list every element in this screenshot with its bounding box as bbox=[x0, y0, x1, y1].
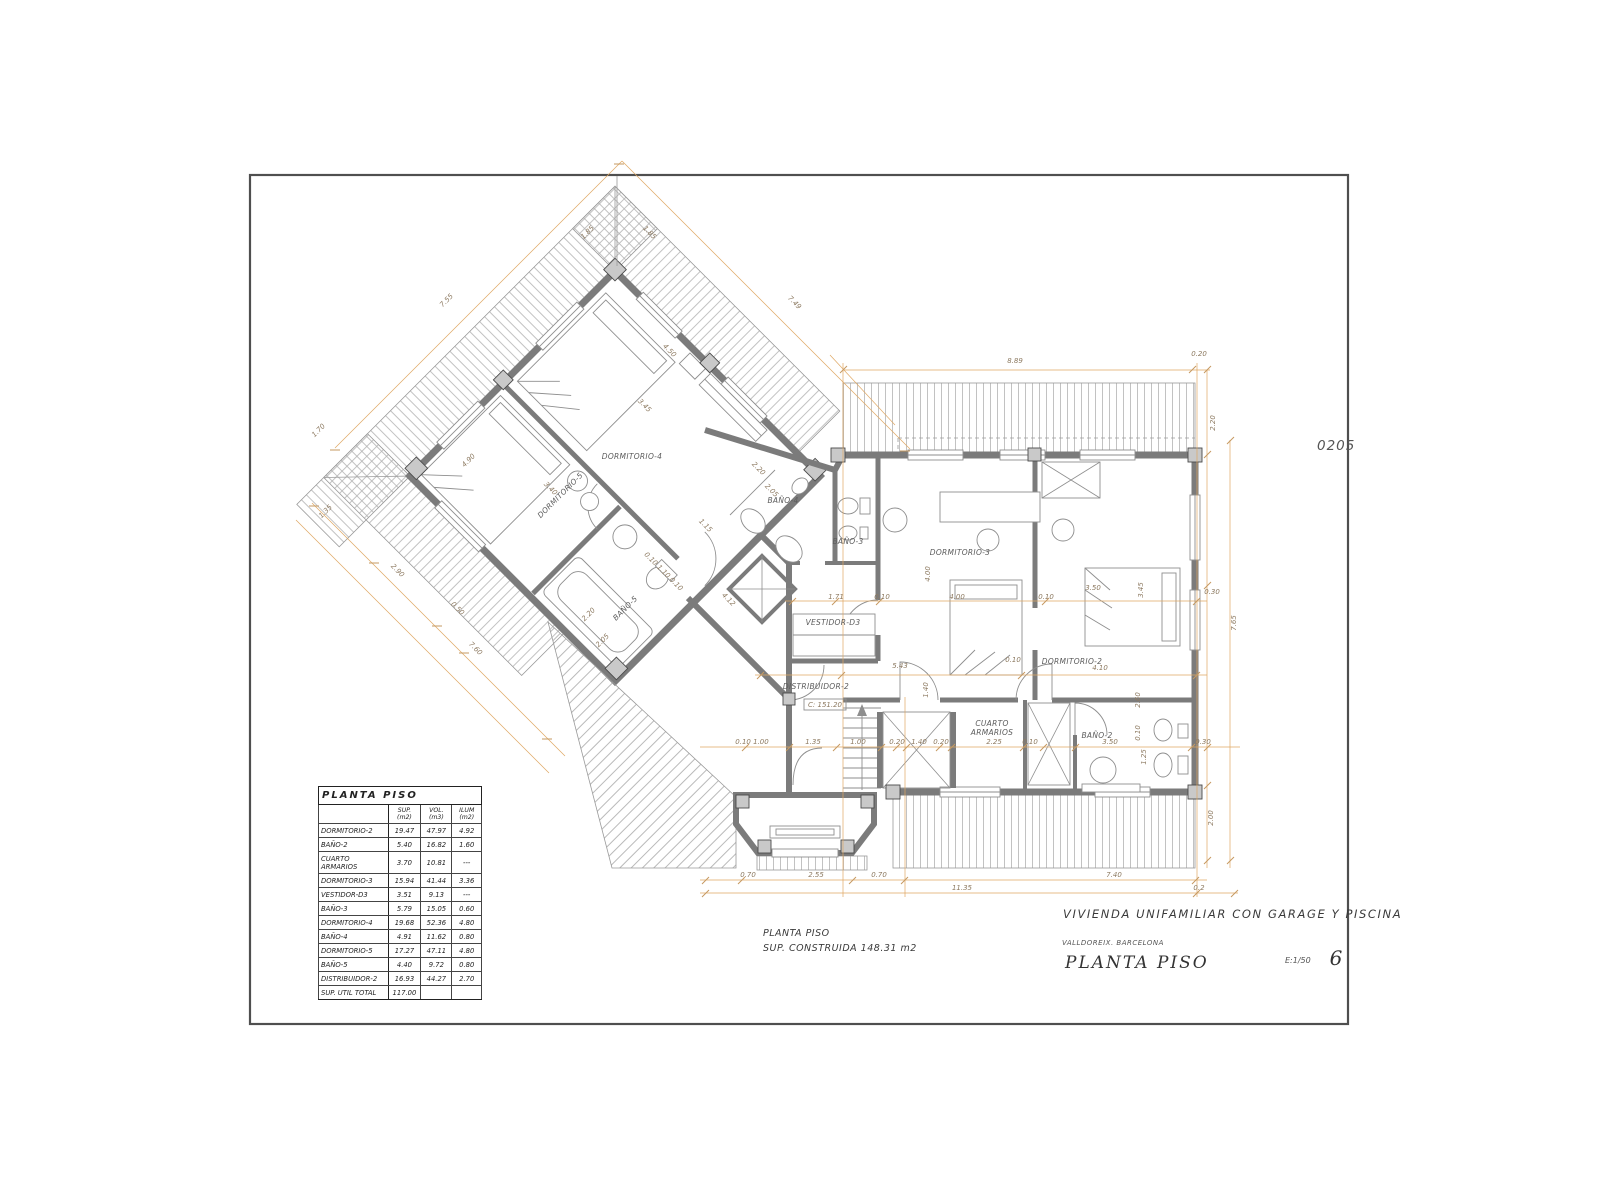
dim-label: 2.90 bbox=[389, 562, 406, 579]
area-table-header-row: SUP. (m2) VOL. (m3) ILUM (m2) bbox=[319, 805, 482, 824]
dim-label: 0.10 bbox=[1022, 738, 1038, 746]
table-row: DORMITORIO-219.4747.974.92 bbox=[319, 824, 482, 838]
drawing-scale: E:1/50 bbox=[1285, 956, 1311, 965]
dim-label: 0.30 bbox=[1204, 588, 1220, 596]
project-location: VALLDOREIX. BARCELONA bbox=[1062, 939, 1164, 947]
dim-label: 0.10 bbox=[874, 593, 890, 601]
summary-line1: PLANTA PISO bbox=[763, 928, 830, 939]
skylight-shaft bbox=[729, 556, 795, 622]
dim-label: 0.70 bbox=[871, 871, 887, 879]
room-label: VESTIDOR-D3 bbox=[806, 618, 861, 627]
dim-label: 0.20 bbox=[933, 738, 949, 746]
title-block: VIVIENDA UNIFAMILIAR CON GARAGE Y PISCIN… bbox=[1062, 907, 1402, 973]
dim-label: 1.25 bbox=[1140, 749, 1148, 765]
room-label: BAÑO-3 bbox=[832, 537, 863, 546]
dim-label: 0.20 bbox=[1191, 350, 1207, 358]
dim-label: 7.60 bbox=[467, 640, 484, 657]
dim-label: 1.40 bbox=[922, 682, 930, 698]
dim-label: 8.89 bbox=[1007, 357, 1023, 365]
summary-line2: SUP. CONSTRUIDA 148.31 m2 bbox=[763, 943, 917, 954]
area-table-title-row: PLANTA PISO bbox=[319, 787, 482, 805]
dim-label: 1.71 bbox=[828, 593, 844, 601]
dim-label: 4.00 bbox=[924, 566, 932, 582]
dim-label: 3.45 bbox=[636, 397, 653, 414]
dim-label: 7.55 bbox=[438, 292, 455, 309]
col-sup: SUP. (m2) bbox=[388, 805, 421, 824]
dim-label: 2.60 bbox=[1134, 692, 1142, 708]
dim-label: 3.50 bbox=[1085, 584, 1101, 592]
level-tag: C: 151.20 bbox=[804, 699, 846, 710]
dim-label: 7.49 bbox=[786, 294, 803, 311]
table-row: BAÑO-35.7915.050.60 bbox=[319, 902, 482, 916]
dim-label: 3.45 bbox=[1137, 582, 1145, 598]
area-table: PLANTA PISO SUP. (m2) VOL. (m3) ILUM (m2… bbox=[318, 786, 482, 1000]
upper-roof-strip bbox=[843, 383, 1195, 453]
dim-label: 1.15 bbox=[697, 517, 714, 534]
dim-label: 0.10 bbox=[1038, 593, 1054, 601]
table-row: BAÑO-25.4016.821.60 bbox=[319, 838, 482, 852]
lower-roof-strip bbox=[893, 795, 1195, 868]
sheet-title: PLANTA PISO bbox=[1064, 953, 1209, 973]
dim-label: 3.50 bbox=[1102, 738, 1118, 746]
dim-label: 0.10 bbox=[1005, 656, 1021, 664]
sink bbox=[608, 520, 642, 554]
area-table-title: PLANTA PISO bbox=[319, 787, 482, 805]
right-wing bbox=[688, 430, 1202, 857]
col-vol: VOL. (m3) bbox=[421, 805, 452, 824]
room-label: DISTRIBUIDOR-2 bbox=[783, 682, 849, 691]
dim-label: 1.35 bbox=[805, 738, 821, 746]
dim-label: 2.20 bbox=[750, 460, 767, 477]
room-label: CUARTO bbox=[975, 719, 1008, 728]
dim-label: 5.43 bbox=[892, 662, 908, 670]
dim-label: 0.70 bbox=[740, 871, 756, 879]
dim-label: 0.30 bbox=[1195, 738, 1211, 746]
project-title: VIVIENDA UNIFAMILIAR CON GARAGE Y PISCIN… bbox=[1063, 907, 1402, 921]
dim-label: 2.55 bbox=[808, 871, 824, 879]
chair bbox=[577, 489, 602, 514]
bay-terrace-hatch bbox=[757, 856, 867, 870]
dim-label: 1.40 bbox=[911, 738, 927, 746]
table-row: BAÑO-44.9111.620.80 bbox=[319, 930, 482, 944]
dim-label: 0.2 bbox=[1193, 884, 1205, 892]
dim-label: 7.65 bbox=[1230, 615, 1238, 631]
col-room bbox=[319, 805, 389, 824]
table-row: BAÑO-54.409.720.80 bbox=[319, 958, 482, 972]
floor-plan-drawing: C: 151.20 DORMITORIO-4DORMITORIO-5BAÑO-5… bbox=[0, 0, 1600, 1200]
table-row: DORMITORIO-419.6852.364.80 bbox=[319, 916, 482, 930]
table-row: DORMITORIO-517.2747.114.80 bbox=[319, 944, 482, 958]
drawing-code: 0205 bbox=[1317, 438, 1355, 454]
table-row: DORMITORIO-315.9441.443.36 bbox=[319, 874, 482, 888]
dim-label: 0.20 bbox=[889, 738, 905, 746]
dim-label: 4.00 bbox=[949, 593, 965, 601]
table-row: VESTIDOR-D33.519.13--- bbox=[319, 888, 482, 902]
area-table-total-row: SUP. UTIL TOTAL 117.00 bbox=[319, 986, 482, 1000]
room-label: BAÑO-4 bbox=[767, 496, 798, 505]
area-table-body: DORMITORIO-219.4747.974.92BAÑO-25.4016.8… bbox=[319, 824, 482, 986]
dim-label: 7.40 bbox=[1106, 871, 1122, 879]
col-ilum: ILUM (m2) bbox=[452, 805, 482, 824]
table-row: DISTRIBUIDOR-216.9344.272.70 bbox=[319, 972, 482, 986]
total-label: SUP. UTIL TOTAL bbox=[319, 986, 389, 1000]
room-label: DORMITORIO-3 bbox=[930, 548, 990, 557]
dim-label: 11.35 bbox=[952, 884, 973, 892]
dim-label: 0.10 1.00 bbox=[735, 738, 769, 746]
dim-label: 1.70 bbox=[310, 422, 327, 439]
room-label: DORMITORIO-4 bbox=[602, 452, 662, 461]
total-value: 117.00 bbox=[388, 986, 421, 1000]
dim-label: 1.00 bbox=[850, 738, 866, 746]
dim-label: 4.10 bbox=[1092, 664, 1108, 672]
dim-label: 2.20 bbox=[1209, 415, 1217, 431]
level-tag-text: C: 151.20 bbox=[808, 701, 843, 709]
dim-label: 0.10 bbox=[1134, 725, 1142, 741]
sheet-page: { "page": { "drawing_code": "0205" }, "t… bbox=[0, 0, 1600, 1200]
table-row: CUARTO ARMARIOS3.7010.81--- bbox=[319, 852, 482, 874]
dim-label: 2.25 bbox=[986, 738, 1002, 746]
door-arc bbox=[678, 532, 732, 586]
dim-label: 2.00 bbox=[1207, 810, 1215, 826]
room-label: ARMARIOS bbox=[970, 728, 1013, 737]
sheet-number: 6 bbox=[1330, 946, 1343, 970]
